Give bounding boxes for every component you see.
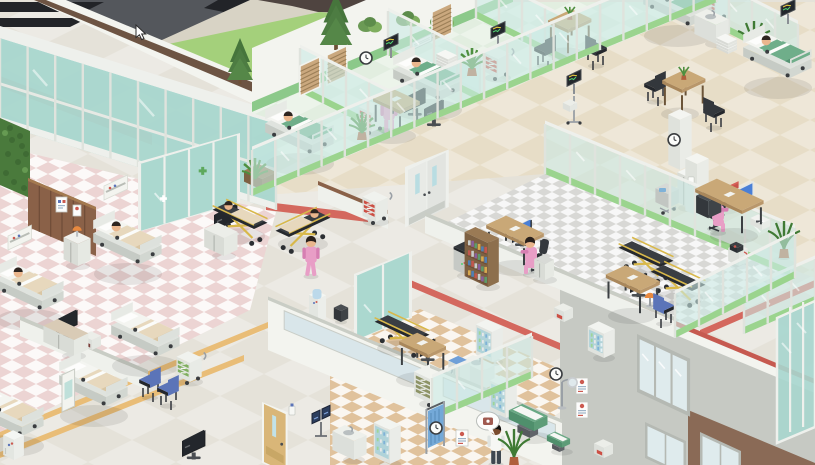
stairwell-glass: [777, 301, 815, 443]
poster: [576, 402, 588, 418]
partition-panel: [62, 369, 75, 412]
poster: [576, 378, 588, 394]
exam-door[interactable]: [262, 402, 288, 465]
medicine-cabinet[interactable]: [374, 417, 401, 465]
game-viewport[interactable]: [0, 0, 815, 465]
trash-bin[interactable]: [334, 304, 348, 324]
wall-clock: [550, 368, 562, 380]
wall-clock: [360, 52, 372, 64]
poster: [456, 430, 468, 446]
mini-fridge[interactable]: [3, 430, 24, 460]
plant-wall: [0, 118, 30, 198]
hospital-isometric-scene: [0, 0, 815, 465]
wall-clock: [430, 422, 442, 434]
